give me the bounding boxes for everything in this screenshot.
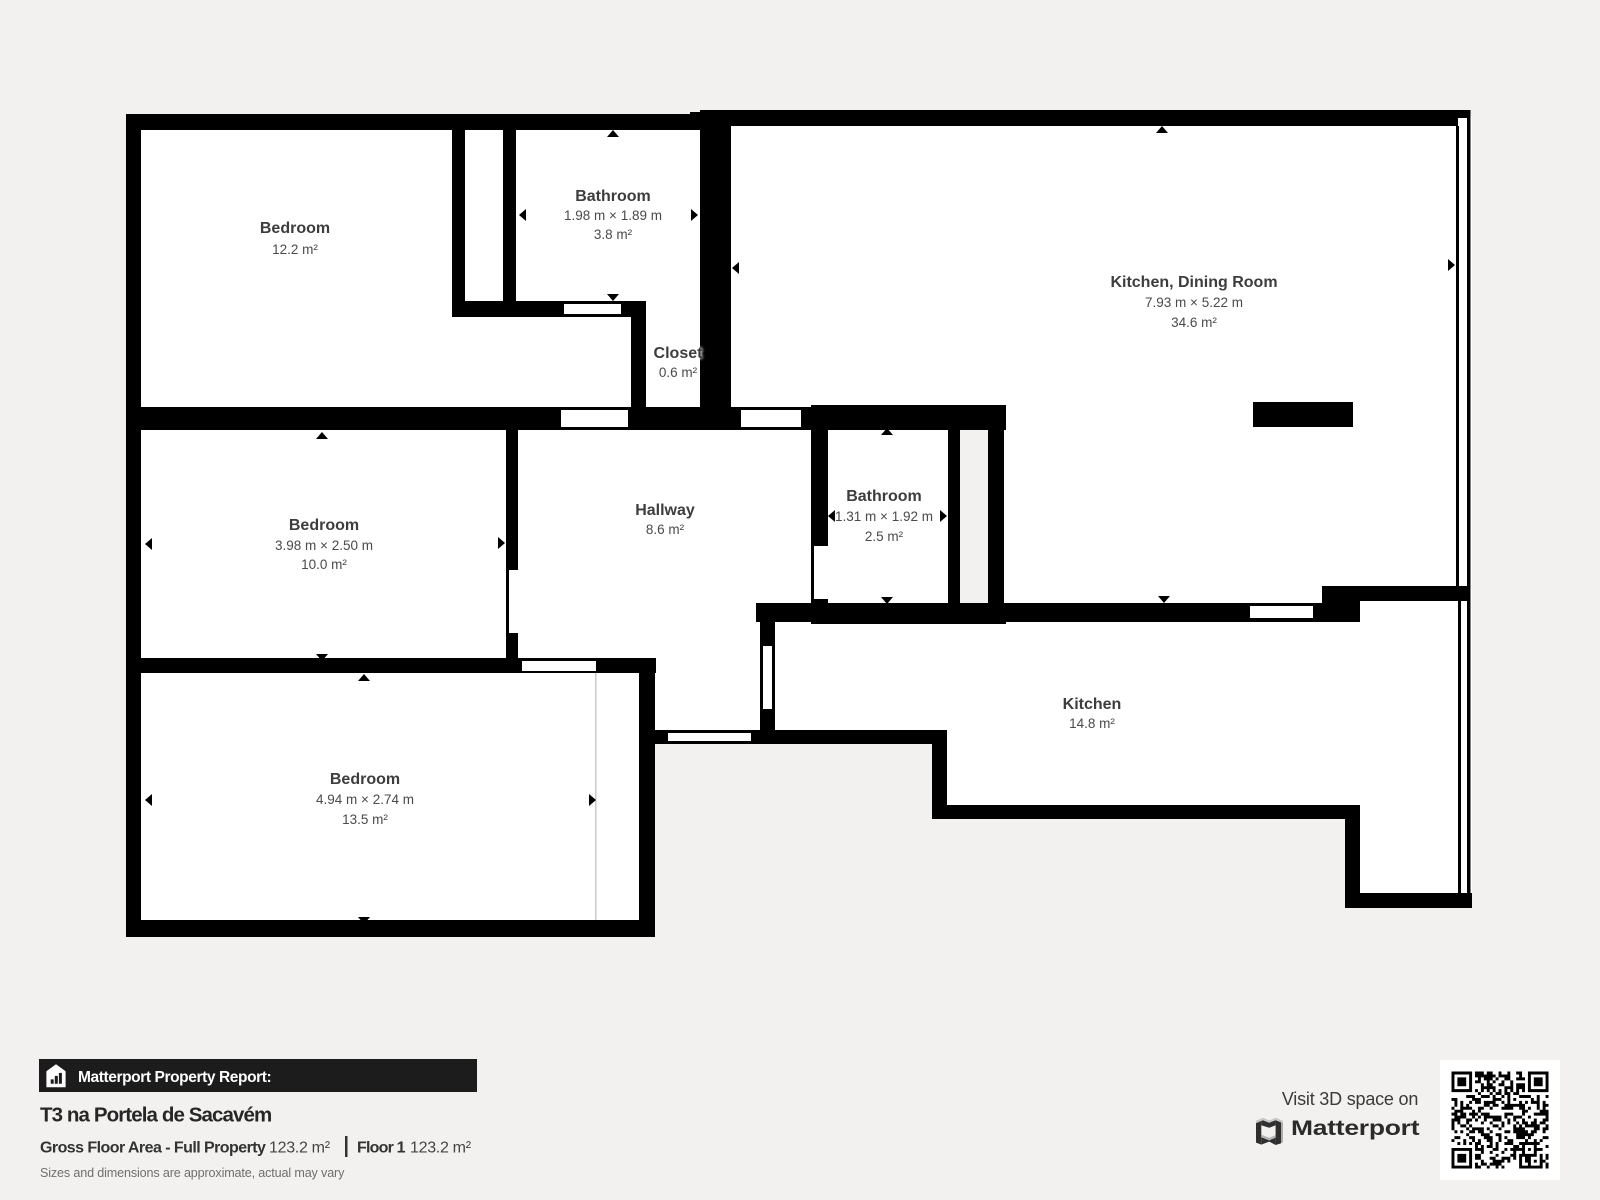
svg-text:Floor 1: Floor 1 xyxy=(357,1140,406,1157)
svg-text:Gross Floor Area - Full Proper: Gross Floor Area - Full Property xyxy=(40,1140,266,1157)
svg-text:123.2 m²: 123.2 m² xyxy=(410,1140,472,1157)
svg-text:Visit 3D space on: Visit 3D space on xyxy=(1282,1089,1418,1109)
svg-text:Sizes and dimensions are appro: Sizes and dimensions are approximate, ac… xyxy=(40,1166,345,1180)
svg-text:123.2 m²: 123.2 m² xyxy=(269,1140,331,1157)
svg-text:Matterport: Matterport xyxy=(1291,1117,1420,1141)
svg-text:T3 na Portela de Sacavém: T3 na Portela de Sacavém xyxy=(40,1104,271,1127)
svg-text:Matterport Property Report:: Matterport Property Report: xyxy=(78,1069,271,1086)
